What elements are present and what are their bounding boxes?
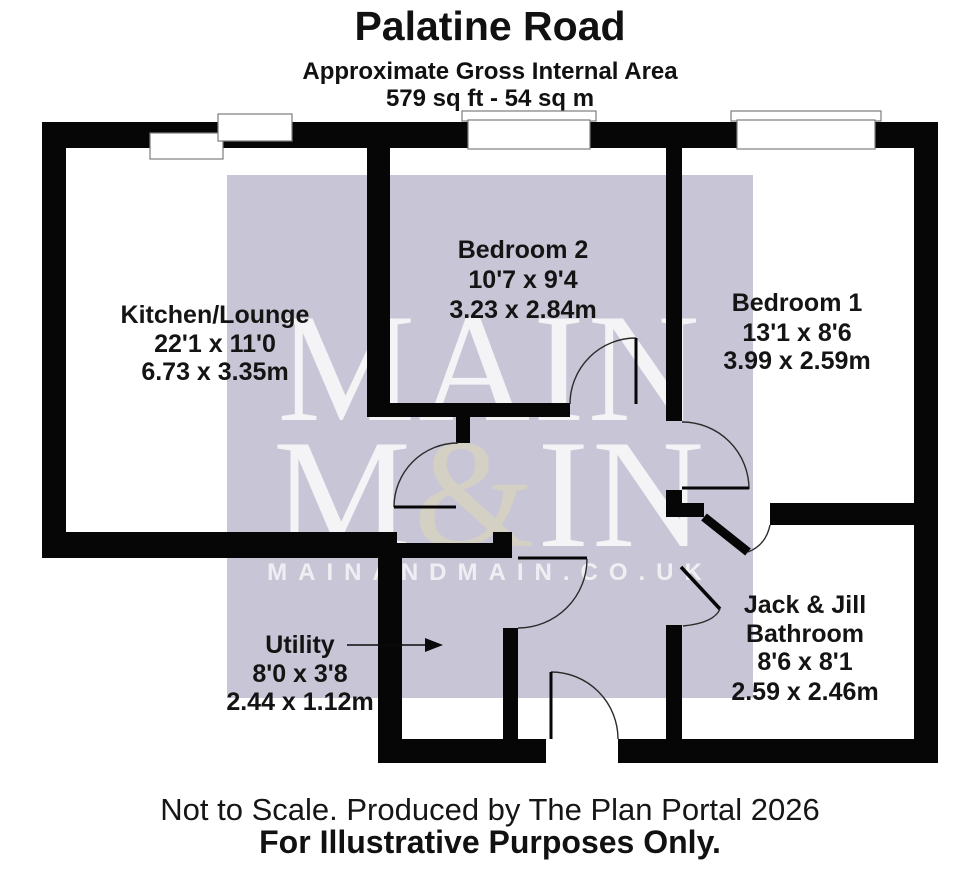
wall-bathroom-top <box>770 503 914 525</box>
window-kitchen-b <box>218 114 292 141</box>
wall-hall-top-post <box>493 532 512 558</box>
room-bedroom2: Bedroom 2 10'7 x 9'4 3.23 x 2.84m <box>449 236 596 324</box>
wall-bedroom2-left <box>367 148 390 417</box>
window-kitchen-a <box>150 133 223 159</box>
bedroom2-imperial: 10'7 x 9'4 <box>468 266 577 294</box>
kitchen-metric: 6.73 x 3.35m <box>141 358 288 386</box>
wall-left <box>42 122 66 558</box>
wall-door-stub <box>456 417 470 443</box>
floorplan-canvas: Palatine Road Approximate Gross Internal… <box>0 0 980 874</box>
wall-bottom-left <box>378 739 546 763</box>
kitchen-imperial: 22'1 x 11'0 <box>154 330 276 358</box>
wall-utility-left <box>378 558 402 763</box>
wall-kitchen-bottom <box>42 532 397 558</box>
bedroom2-metric: 3.23 x 2.84m <box>449 296 596 324</box>
area-text: 579 sq ft - 54 sq m <box>386 85 594 112</box>
bathroom-name-line1: Jack & Jill <box>744 591 866 619</box>
footer-disclaimer: Not to Scale. Produced by The Plan Porta… <box>160 792 819 827</box>
wall-bedroom1-left <box>666 148 682 421</box>
bedroom1-imperial: 13'1 x 8'6 <box>742 319 851 347</box>
utility-imperial: 8'0 x 3'8 <box>252 660 347 688</box>
kitchen-name: Kitchen/Lounge <box>121 301 310 329</box>
page-subtitle: Approximate Gross Internal Area <box>302 58 678 85</box>
wall-bottom-right <box>618 739 938 763</box>
page-title: Palatine Road <box>354 3 625 49</box>
wall-hall-top <box>397 543 493 558</box>
wall-bedroom2-bottom <box>367 403 570 417</box>
bathroom-name-line2: Bathroom <box>746 620 864 648</box>
room-bedroom1: Bedroom 1 13'1 x 8'6 3.99 x 2.59m <box>723 289 870 375</box>
wall-right <box>914 122 938 763</box>
window-bedroom1 <box>737 120 875 149</box>
wall-bathroom-left-lower <box>666 625 682 739</box>
wall-bathroom-corner-v <box>666 490 682 517</box>
utility-name: Utility <box>265 631 335 659</box>
utility-metric: 2.44 x 1.12m <box>226 688 373 716</box>
wall-bathroom-corner-h <box>682 503 704 517</box>
bathroom-metric: 2.59 x 2.46m <box>731 678 878 706</box>
window-bedroom2 <box>468 120 590 149</box>
footer-illustrative: For Illustrative Purposes Only. <box>259 824 721 860</box>
bedroom1-name: Bedroom 1 <box>732 289 863 317</box>
wall-utility-right <box>503 628 518 739</box>
bathroom-imperial: 8'6 x 8'1 <box>757 648 852 676</box>
bedroom2-name: Bedroom 2 <box>458 236 589 264</box>
floorplan-page: Palatine Road Approximate Gross Internal… <box>0 0 980 874</box>
bedroom1-metric: 3.99 x 2.59m <box>723 347 870 375</box>
watermark-url: MAINANDMAIN.CO.UK <box>267 559 713 586</box>
footer: Not to Scale. Produced by The Plan Porta… <box>160 792 819 860</box>
